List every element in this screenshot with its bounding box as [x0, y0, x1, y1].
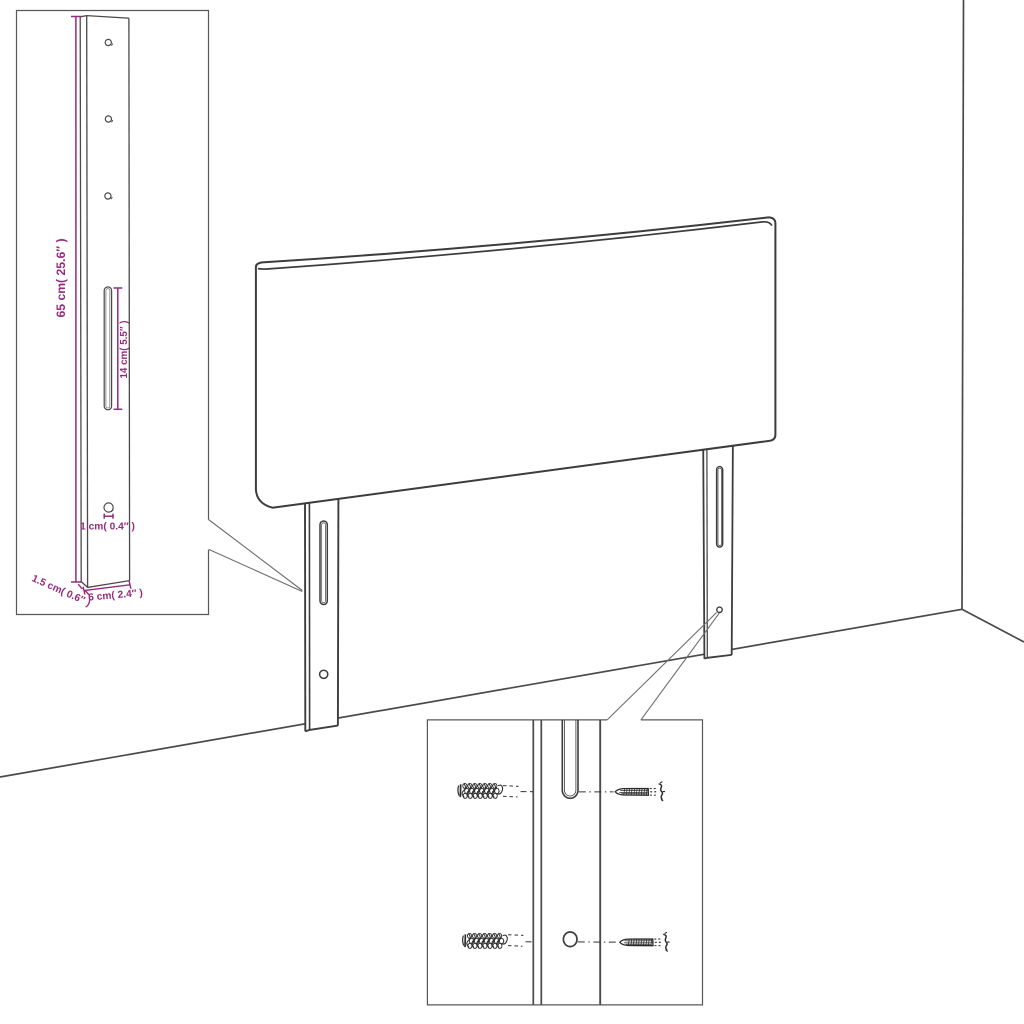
svg-text:14 cm( 5.5″ ): 14 cm( 5.5″ ) — [119, 320, 130, 378]
svg-text:1 cm( 0.4″ ): 1 cm( 0.4″ ) — [80, 521, 135, 532]
svg-text:65 cm( 25.6″ ): 65 cm( 25.6″ ) — [54, 238, 68, 317]
